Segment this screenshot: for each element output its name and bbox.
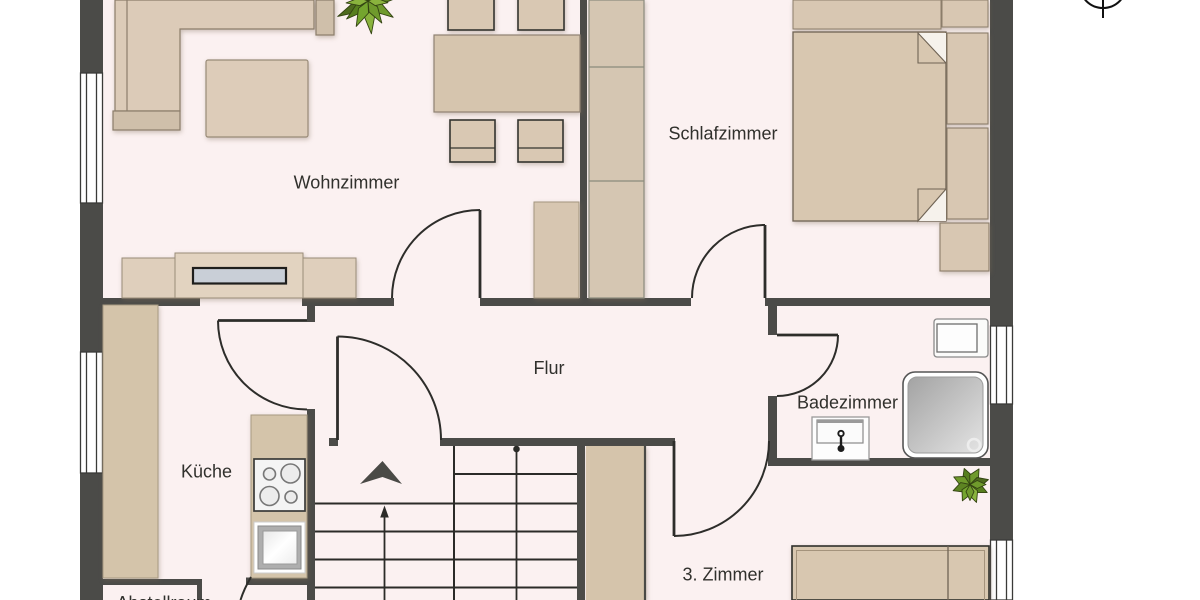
svg-text:Abstellraum: Abstellraum	[116, 593, 211, 600]
svg-text:3. Zimmer: 3. Zimmer	[683, 565, 764, 585]
svg-text:Schlafzimmer: Schlafzimmer	[668, 124, 777, 144]
svg-text:Flur: Flur	[534, 358, 565, 378]
svg-text:Küche: Küche	[181, 462, 232, 482]
svg-text:Wohnzimmer: Wohnzimmer	[294, 173, 400, 193]
svg-text:Badezimmer: Badezimmer	[797, 393, 898, 413]
